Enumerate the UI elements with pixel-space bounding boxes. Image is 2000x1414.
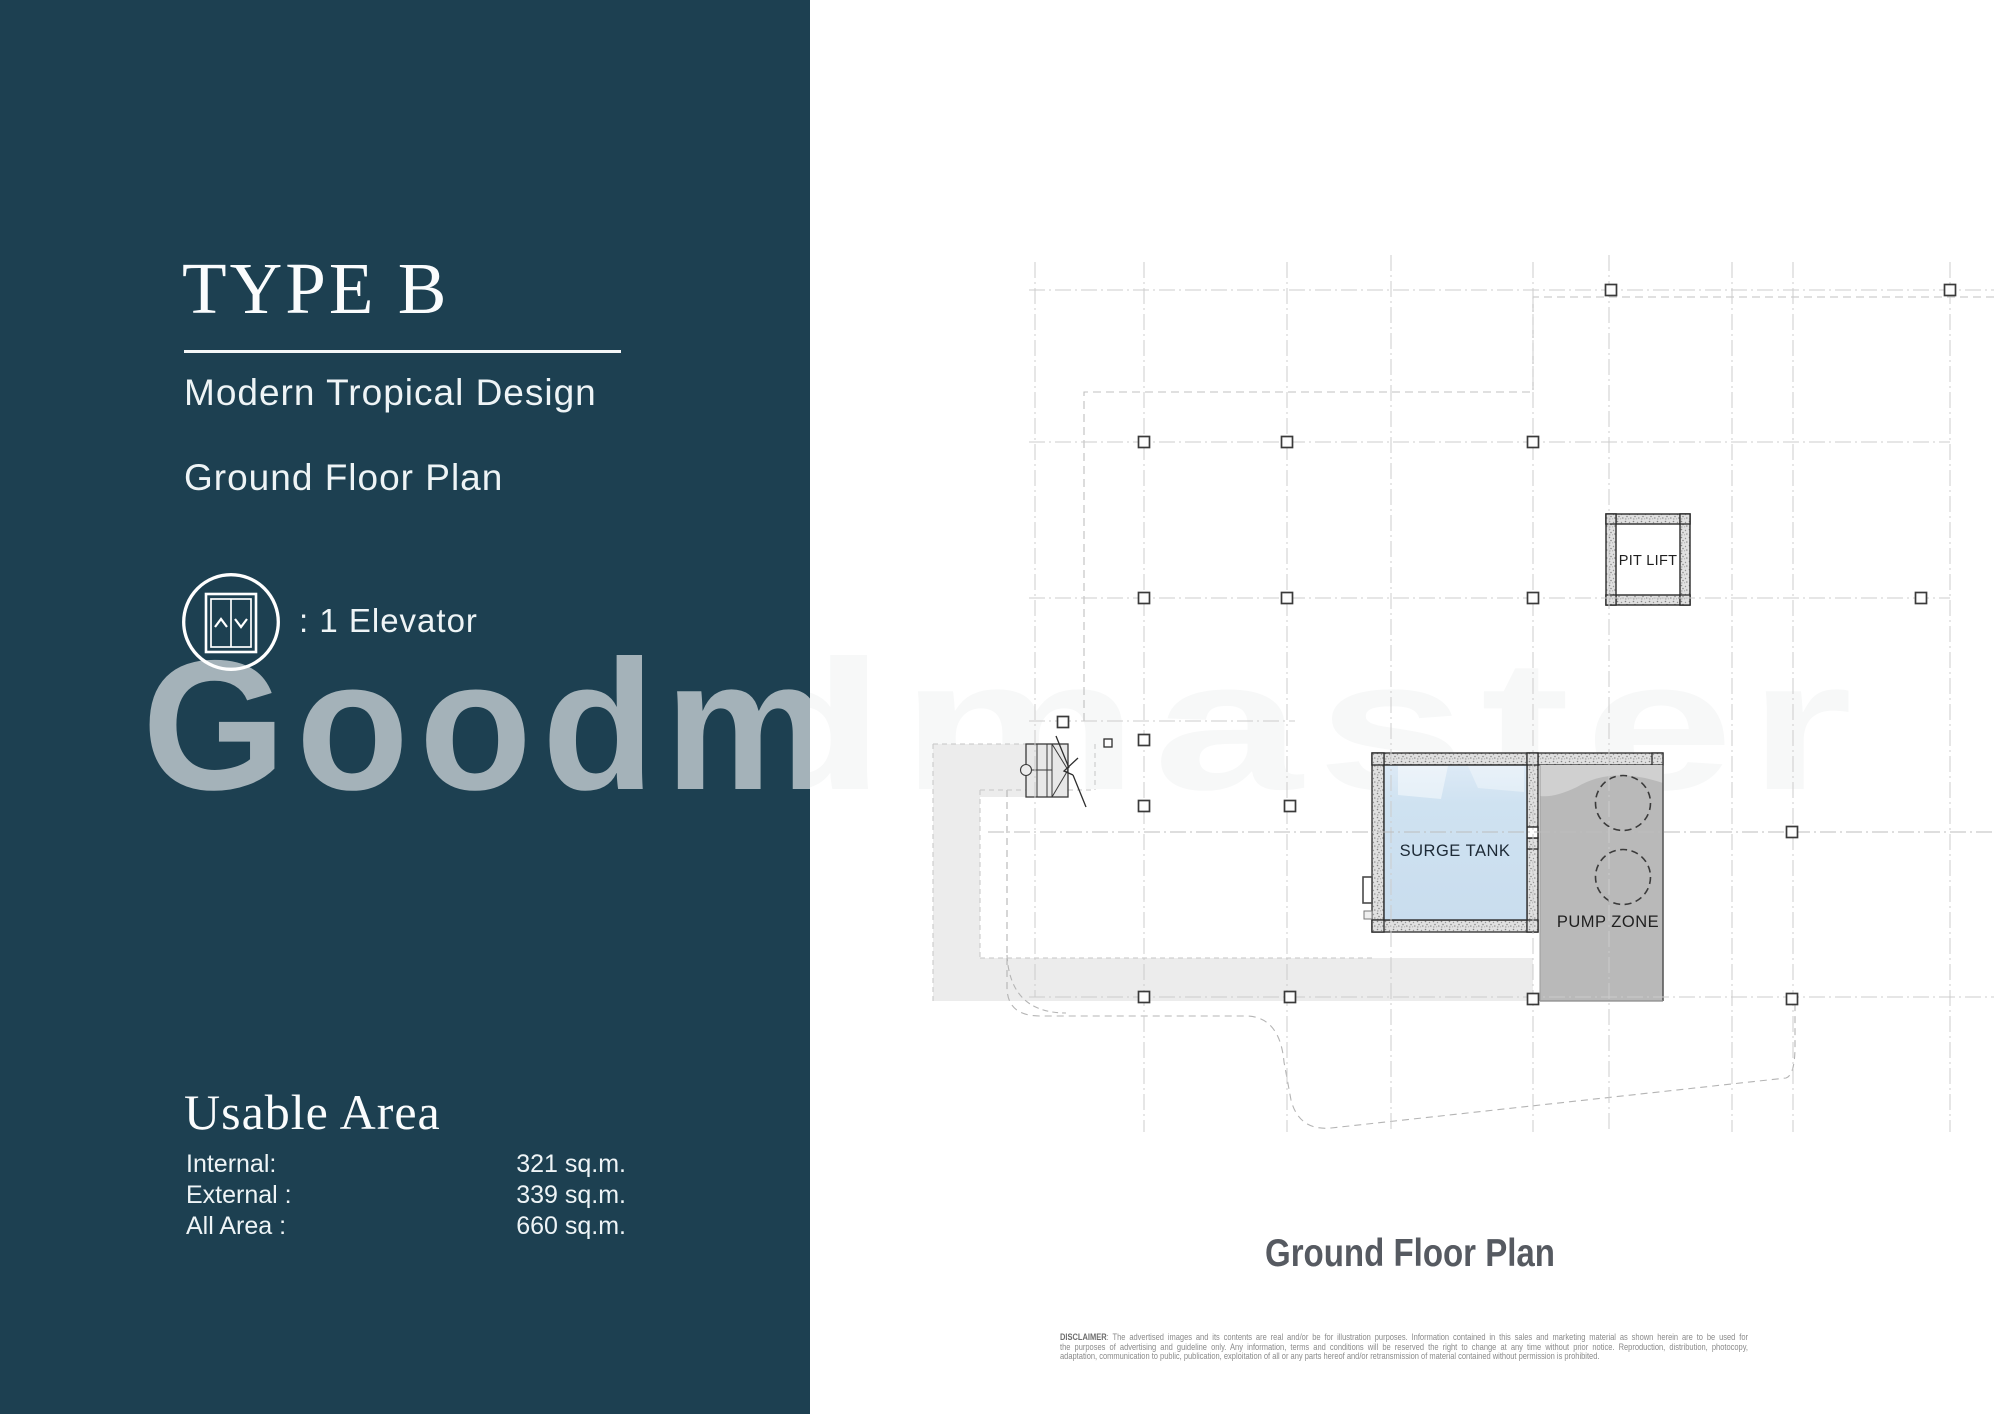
svg-text:Ground Floor Plan: Ground Floor Plan: [1265, 1232, 1555, 1275]
svg-text:PUMP ZONE: PUMP ZONE: [1557, 913, 1659, 931]
svg-text:PIT LIFT: PIT LIFT: [1619, 553, 1678, 569]
svg-text:SURGE TANK: SURGE TANK: [1400, 842, 1511, 860]
